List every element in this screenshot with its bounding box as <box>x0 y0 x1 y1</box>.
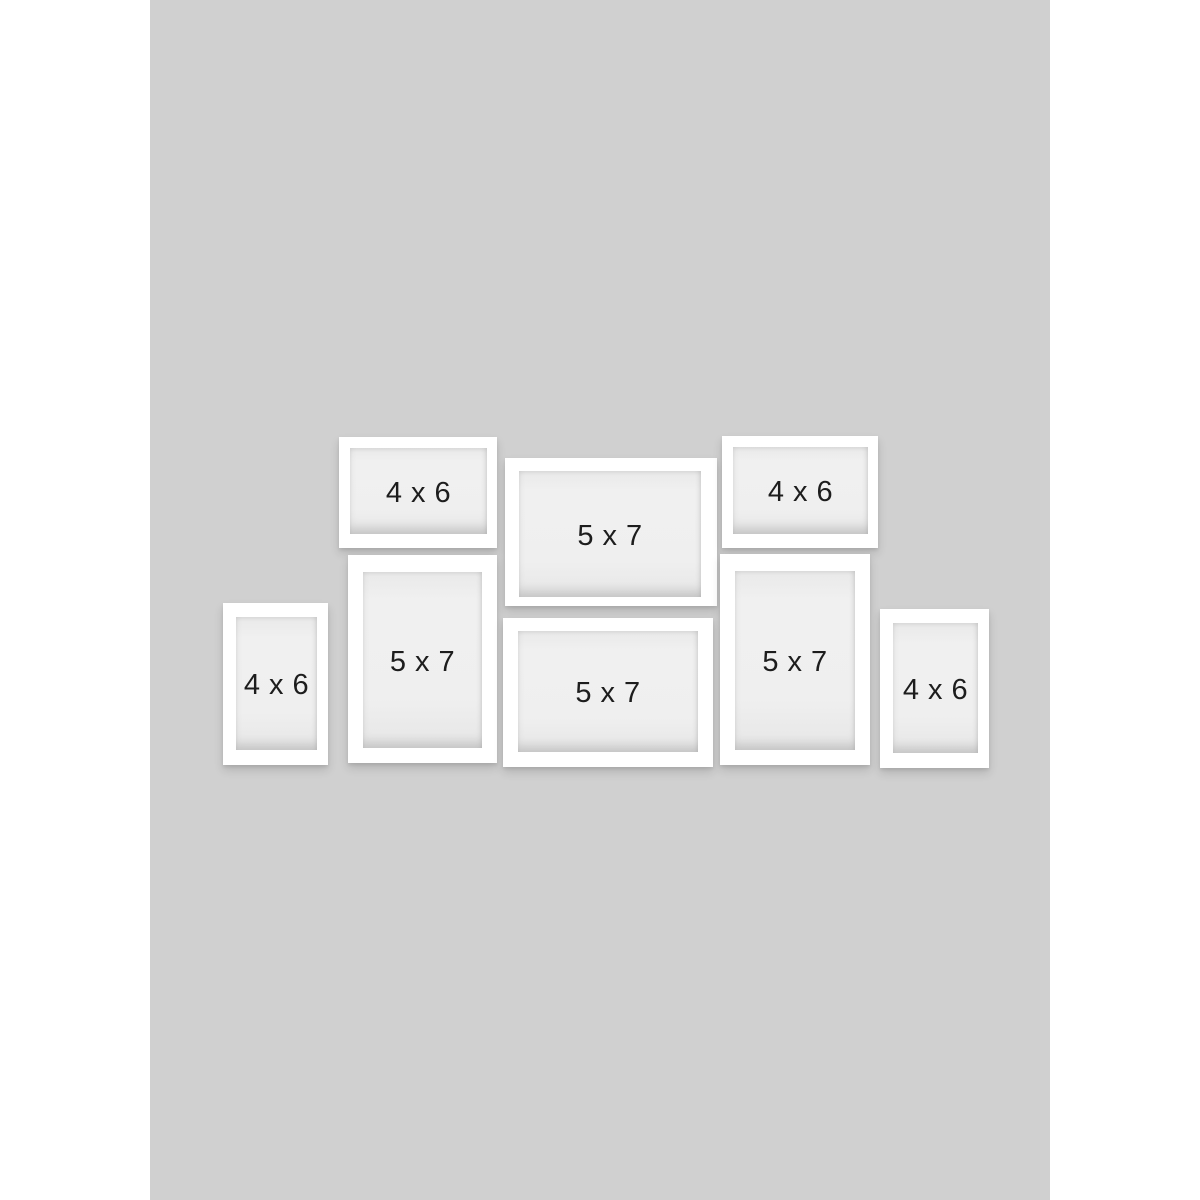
frame-size-label: 4 x 6 <box>768 476 833 509</box>
frame-mat: 4 x 6 <box>893 623 978 753</box>
photo-frame-5x7-landscape-top-center: 5 x 7 <box>505 458 717 606</box>
photo-frame-4x6-landscape-top-right: 4 x 6 <box>722 436 878 548</box>
frame-size-label: 4 x 6 <box>244 669 309 702</box>
frame-size-label: 4 x 6 <box>386 477 451 510</box>
frame-mat: 4 x 6 <box>733 447 868 534</box>
frame-size-label: 5 x 7 <box>577 520 642 553</box>
photo-frame-4x6-portrait-far-left: 4 x 6 <box>223 603 328 765</box>
frame-mat: 5 x 7 <box>519 471 701 597</box>
photo-frame-5x7-portrait-right: 5 x 7 <box>720 554 870 765</box>
photo-frame-5x7-portrait-left: 5 x 7 <box>348 555 497 763</box>
product-photo-frame-set: 4 x 6 5 x 7 4 x 6 4 x 6 5 x 7 5 x 7 5 x … <box>0 0 1200 1200</box>
photo-frame-5x7-landscape-bottom-center: 5 x 7 <box>503 618 713 767</box>
frame-mat: 4 x 6 <box>350 448 487 534</box>
frame-mat: 5 x 7 <box>518 631 698 752</box>
frame-mat: 5 x 7 <box>735 571 855 750</box>
photo-frame-4x6-landscape-top-left: 4 x 6 <box>339 437 497 548</box>
frame-size-label: 4 x 6 <box>903 674 968 707</box>
photo-frame-4x6-portrait-far-right: 4 x 6 <box>880 609 989 768</box>
frame-size-label: 5 x 7 <box>762 646 827 679</box>
frame-mat: 4 x 6 <box>236 617 317 750</box>
frame-mat: 5 x 7 <box>363 572 482 748</box>
frame-size-label: 5 x 7 <box>390 646 455 679</box>
frame-size-label: 5 x 7 <box>575 677 640 710</box>
